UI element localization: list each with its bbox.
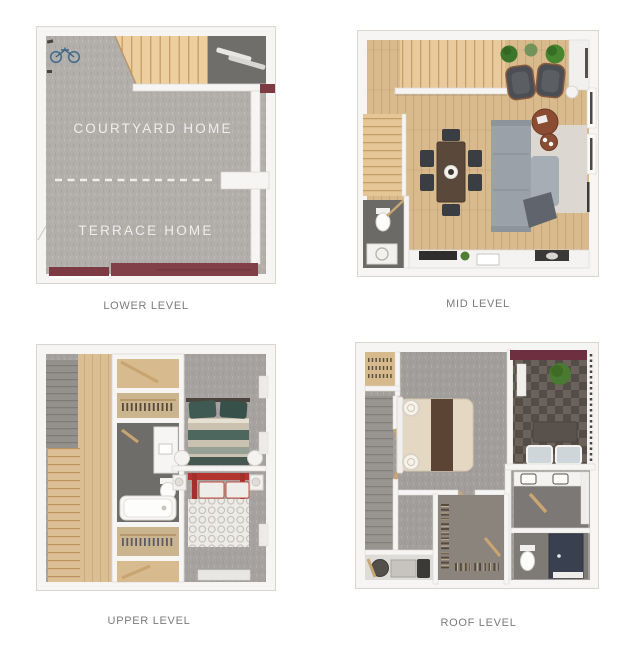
shower-unit [549,534,583,578]
headboard [188,473,249,480]
plan-upper-level-drawing [36,344,276,594]
dining-chair [442,204,460,216]
dining-chair [468,174,482,191]
kitchen-sink [477,254,499,265]
sink [553,474,568,484]
plan-caption-upper-level: UPPER LEVEL [29,615,269,627]
room-label-courtyard-home: COURTYARD HOME [73,121,232,136]
door-mat [198,570,250,580]
plant-icon [461,252,470,261]
plan-caption-mid-level: MID LEVEL [357,298,599,310]
round-pillow [403,454,419,470]
plan-roof-level-drawing [355,342,600,592]
entry-door-accent [260,84,275,93]
floor-plans-grid: COURTYARD HOME TERRACE HOME LOWER LEVEL [0,0,639,662]
roof-terrace [505,350,595,470]
bath-ledge [553,572,583,578]
lower-stair-run [363,114,406,196]
round-nightstand [175,451,190,466]
dining-chair [420,174,434,191]
toilet [521,552,535,571]
master-bed [397,397,473,473]
entry-door [585,48,588,78]
plan-roof-level [355,342,600,592]
pillow [219,400,247,419]
wall-hook [47,70,52,73]
closet-3 [117,527,179,556]
stair-half-wall [133,84,266,91]
toilet-tank [520,545,535,551]
room-label-terrace-home: TERRACE HOME [78,223,213,238]
planter [517,364,526,396]
pillow [226,482,249,498]
plan-caption-roof-level: ROOF LEVEL [356,617,601,629]
upper-stair-run [395,40,507,96]
washer [367,244,397,264]
storage-box [391,560,416,577]
vanity-nook [514,472,589,528]
pillow [188,400,216,419]
plan-lower-level: COURTYARD HOME TERRACE HOME [36,26,276,286]
dining-chair [442,129,460,141]
party-wall-shelf [221,172,269,189]
bathroom [117,423,179,522]
round-pillow [403,400,419,416]
bed-runner [431,399,453,471]
closet-top-left [365,352,400,396]
storage-room [208,36,266,85]
parapet-accent-wall [510,350,590,360]
side-table [566,86,578,98]
walk-in-closet [433,494,509,584]
sink [521,474,536,484]
cooktop [419,251,457,260]
plan-mid-level [357,30,599,280]
tall-cabinet [581,472,589,524]
storage-nook [365,550,433,580]
landing-and-stairs [46,354,112,582]
powder-room [363,196,409,268]
bathroom [511,528,590,579]
terrace-chair [556,446,581,464]
dining-chair [420,150,434,167]
closet-2 [117,393,179,418]
terrace-chair [527,446,552,464]
terrace-table [533,422,577,442]
sink [159,444,172,454]
luggage [417,559,430,578]
plan-lower-level-drawing [36,26,276,286]
plan-caption-lower-level: LOWER LEVEL [26,300,266,312]
pillow [199,482,224,498]
closet-bottom [117,561,179,582]
dining-chair [468,150,482,167]
plan-mid-level-drawing [357,30,599,280]
bedroom-divider-wall [172,466,266,471]
kitchen-counter [409,250,589,268]
plan-upper-level [36,344,276,594]
